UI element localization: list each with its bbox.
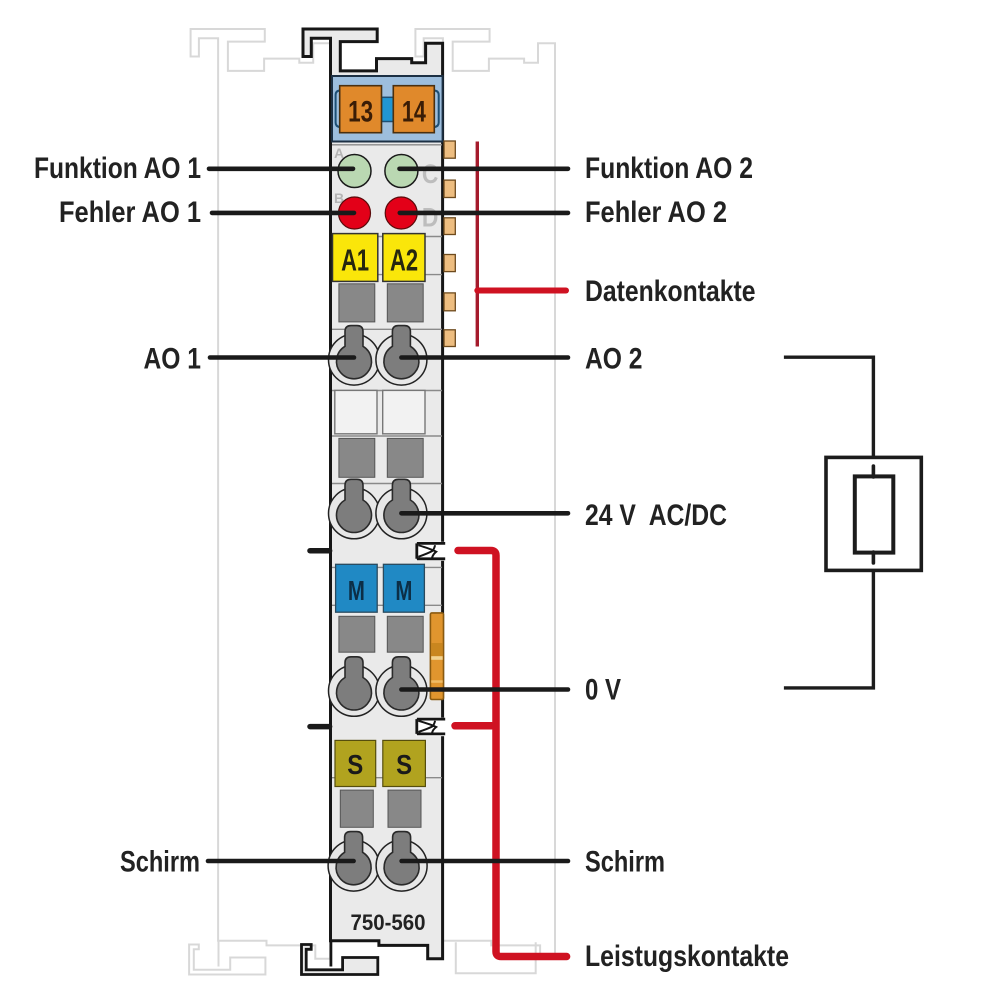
svg-text:Funktion AO 1: Funktion AO 1 [34, 152, 201, 185]
svg-text:AO 1: AO 1 [144, 343, 202, 376]
svg-text:AO 2: AO 2 [585, 343, 643, 376]
svg-text:13: 13 [348, 96, 373, 129]
svg-text:Schirm: Schirm [585, 846, 665, 879]
svg-text:A1: A1 [341, 243, 369, 278]
svg-text:750-560: 750-560 [351, 910, 426, 935]
svg-text:Datenkontakte: Datenkontakte [585, 275, 756, 308]
svg-text:Fehler AO 1: Fehler AO 1 [59, 196, 201, 229]
svg-text:C: C [422, 159, 439, 189]
svg-text:Fehler AO 2: Fehler AO 2 [585, 196, 727, 229]
svg-text:A2: A2 [390, 243, 418, 278]
svg-text:S: S [347, 749, 363, 780]
svg-text:0 V: 0 V [585, 674, 621, 707]
svg-text:M: M [348, 575, 365, 606]
svg-text:D: D [422, 203, 439, 233]
svg-text:S: S [396, 749, 412, 780]
svg-text:Leistugskontakte: Leistugskontakte [585, 940, 789, 973]
svg-text:Funktion AO 2: Funktion AO 2 [585, 152, 753, 185]
svg-text:14: 14 [402, 96, 426, 129]
svg-text:M: M [395, 575, 412, 606]
svg-text:24 V AC/DC: 24 V AC/DC [585, 499, 727, 532]
svg-text:Schirm: Schirm [120, 846, 200, 879]
